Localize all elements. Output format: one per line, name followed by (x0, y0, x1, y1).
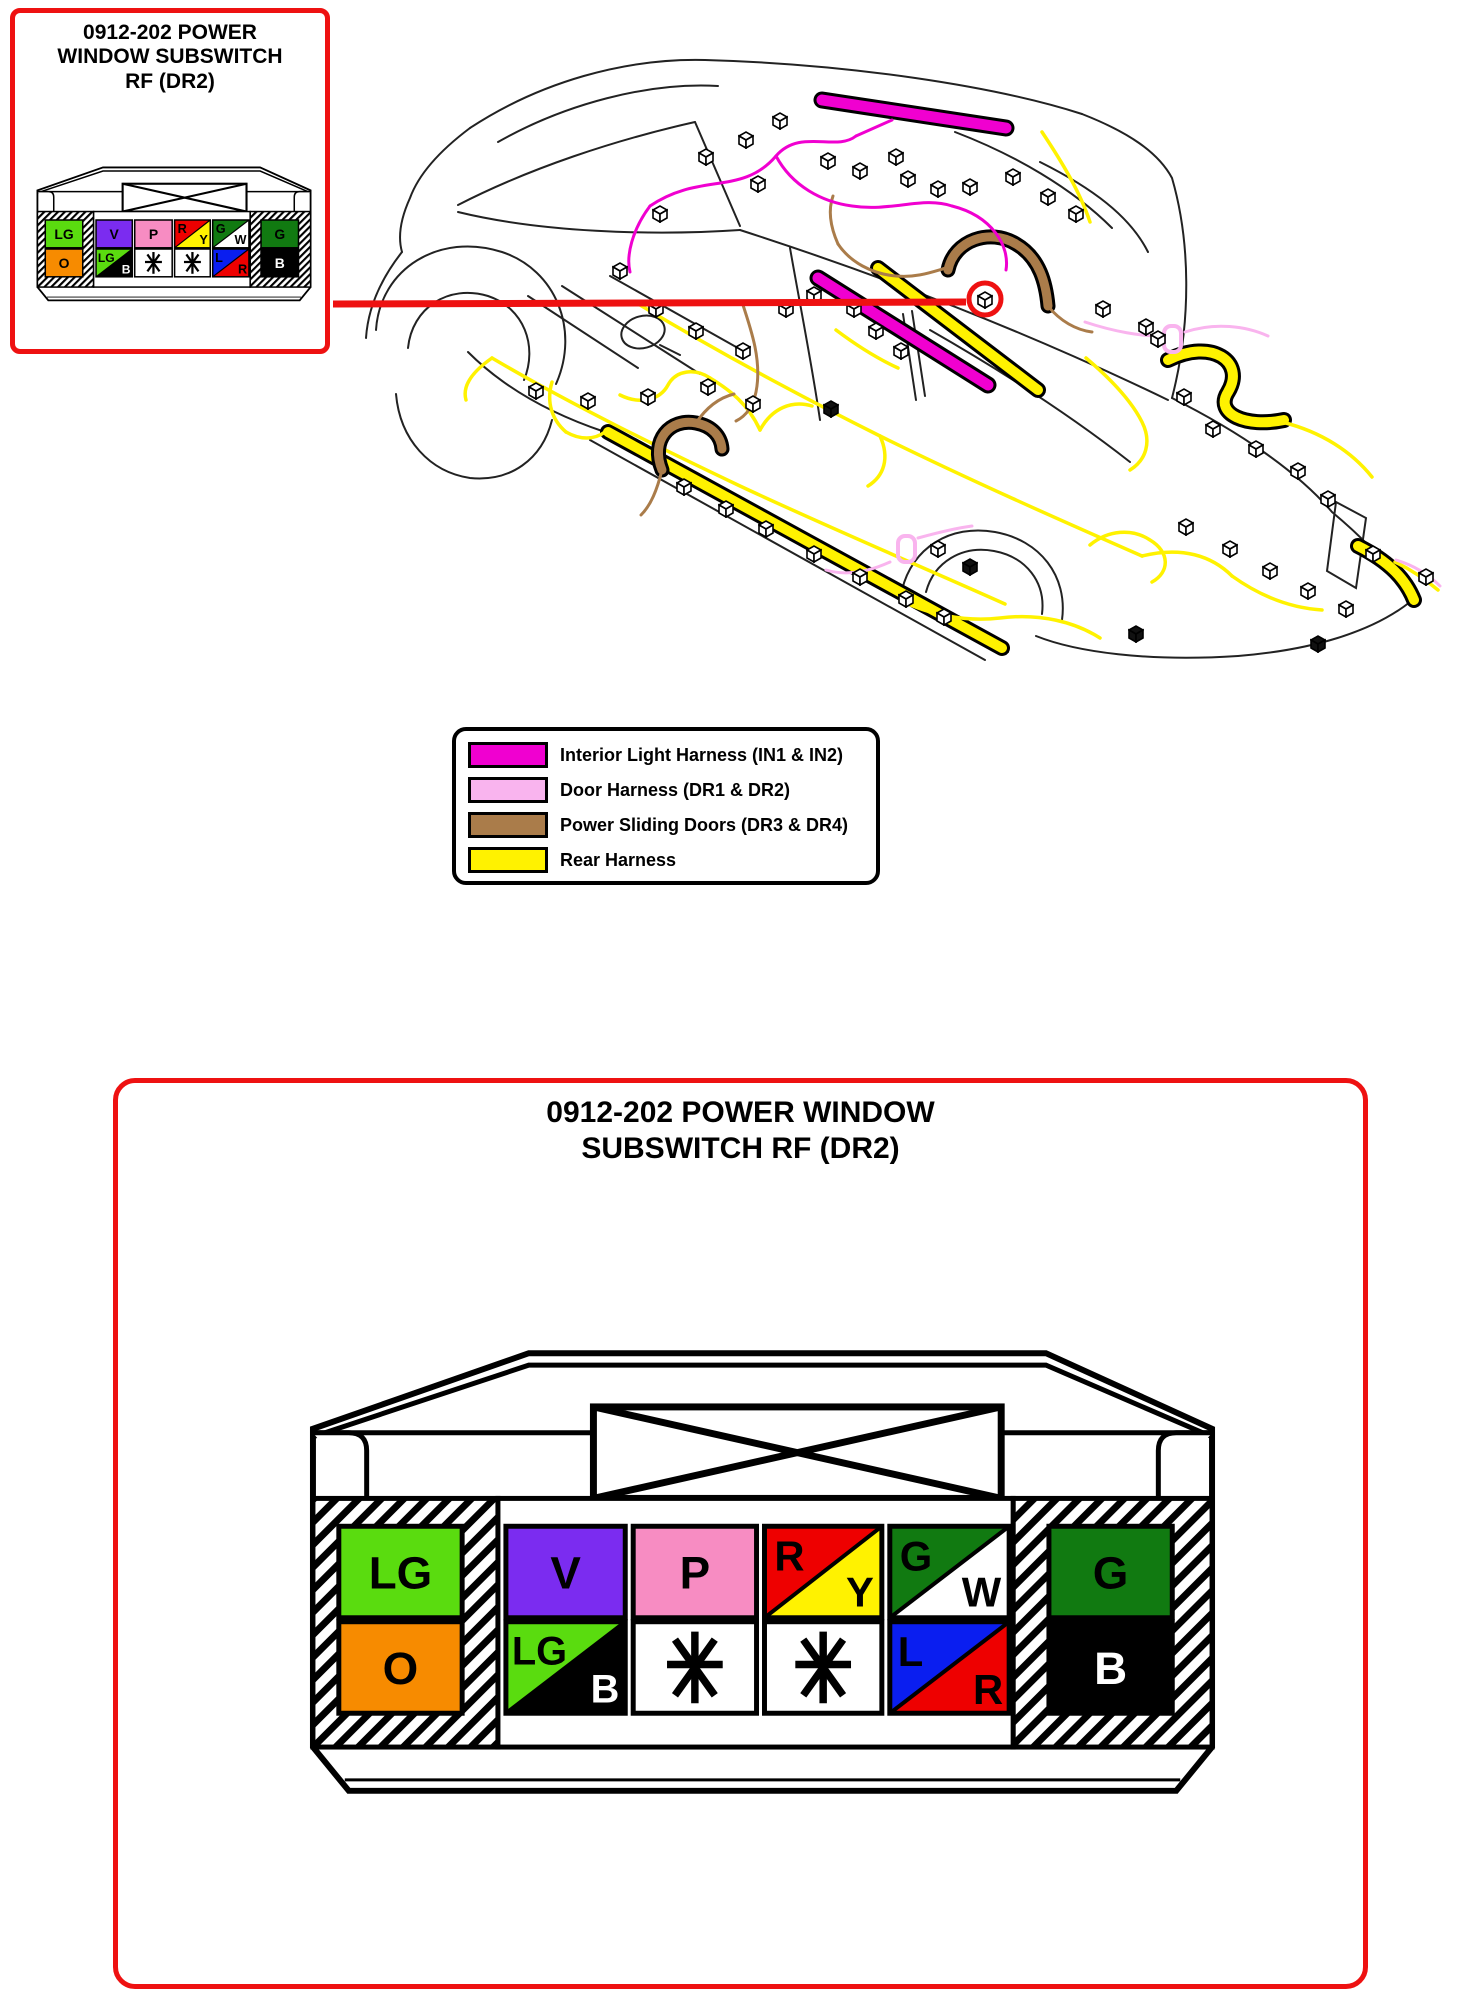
callout-title: 0912-202 POWER WINDOW SUBSWITCH RF (DR2) (15, 21, 325, 94)
legend-label: Power Sliding Doors (DR3 & DR4) (560, 815, 848, 836)
legend-item-door: Door Harness (DR1 & DR2) (468, 775, 876, 805)
car-harness-illustration (330, 40, 1450, 670)
rear-harness-outlines (608, 268, 1414, 648)
panel-title: 0912-202 POWER WINDOW SUBSWITCH RF (DR2) (118, 1095, 1363, 1167)
callout-title-line-3: RF (DR2) (15, 70, 325, 94)
small-connector-diagram (35, 165, 313, 304)
callout-title-line-2: WINDOW SUBSWITCH (15, 45, 325, 69)
callout-title-line-1: 0912-202 POWER (15, 21, 325, 45)
harness-legend: Interior Light Harness (IN1 & IN2) Door … (452, 727, 880, 885)
legend-swatch-sliding-doors (468, 812, 548, 838)
legend-item-rear: Rear Harness (468, 845, 876, 875)
callout-connector-line (333, 302, 966, 304)
legend-label: Interior Light Harness (IN1 & IN2) (560, 745, 843, 766)
panel-title-line-1: 0912-202 POWER WINDOW (118, 1095, 1363, 1131)
callout-box: 0912-202 POWER WINDOW SUBSWITCH RF (DR2) (10, 8, 330, 354)
car-body-outline (366, 60, 1410, 660)
connector-detail-panel: 0912-202 POWER WINDOW SUBSWITCH RF (DR2) (113, 1078, 1368, 1989)
legend-swatch-door (468, 777, 548, 803)
panel-title-line-2: SUBSWITCH RF (DR2) (118, 1131, 1363, 1167)
page: LG V P R (0, 0, 1469, 2000)
legend-swatch-rear (468, 847, 548, 873)
big-connector-diagram (305, 1345, 1220, 1803)
legend-swatch-interior-light (468, 742, 548, 768)
legend-label: Rear Harness (560, 850, 676, 871)
legend-item-interior-light: Interior Light Harness (IN1 & IN2) (468, 740, 876, 770)
legend-label: Door Harness (DR1 & DR2) (560, 780, 790, 801)
rear-harness (465, 132, 1438, 648)
legend-item-sliding-doors: Power Sliding Doors (DR3 & DR4) (468, 810, 876, 840)
